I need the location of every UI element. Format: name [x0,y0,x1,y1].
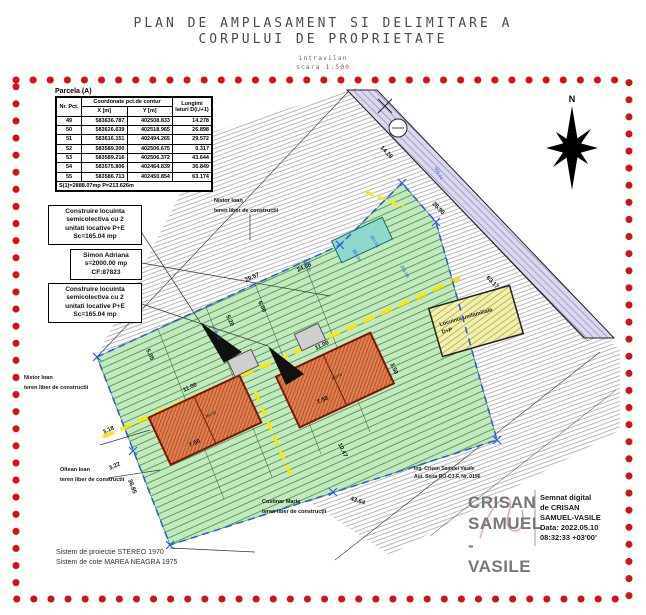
table-row: 53583589.216402506.37243.644 [56,153,212,162]
page-subtitle: intravilan scara 1:500 [0,54,646,72]
owner-label-nistor-top: Nistor Ioanteren liber de constructii [214,197,278,217]
page-title: PLAN DE AMPLASAMENT SI DELIMITARE A CORP… [0,16,646,49]
annotation-box-owner: Simon Adriana s=2000.00 mp CF:87823 [70,249,142,280]
table-row: 49583636.787402508.83314.278 [56,116,212,125]
plan-document: Locuinta unifamiliala D+P [0,0,646,615]
coords-table: Nr. Pct. Coordonate pct.de contur Lungim… [55,96,213,192]
projection-system-notes: Sistem de proiectie STEREO 1970 Sistem d… [56,548,177,568]
engineer-credentials: Ing. Crișan Samuel Vasile Aut. Seria RO-… [414,466,480,481]
svg-text:36.85: 36.85 [126,479,137,496]
annotation-box-construire-2: Construire locuinta semicolectiva cu 2 u… [48,283,142,323]
col-header-coords: Coordonate pct.de contur [82,97,173,107]
north-label: N [569,94,576,104]
coordinates-table-block: Parcela (A) Nr. Pct. Coordonate pct.de c… [55,88,213,192]
table-row: 55583586.713402450.85463.174 [56,172,212,181]
north-compass-icon: N [537,94,608,190]
col-header-length: Lungimi laturi D(i,i+1) [173,97,213,116]
table-row: 52583589.300402506.6750.317 [56,144,212,153]
col-header-y: Y [m] [127,107,173,116]
signature-details: Semnat digital de CRISAN SAMUEL-VASILE D… [540,493,630,542]
annotation-box-construire-1: Construire locuinta semicolectiva cu 2 u… [48,205,142,245]
table-footer-row: S(1)=2888.07mp P=213.626m [56,181,212,191]
table-row: 50583626.639402518.96526.898 [56,125,212,134]
owner-label-nistor-left: Nistor Ioanteren liber de constructii [24,374,88,394]
col-header-x: X [m] [82,107,128,116]
table-row: 51583616.151402494.26529.572 [56,135,212,144]
col-header-point: Nr. Pct. [56,97,82,116]
table-row: 54583575.806402464.83936.849 [56,163,212,172]
signature-name: CRISAN SAMUEL -VASILE [468,492,534,577]
table-caption: Parcela (A) [55,88,213,95]
owner-label-oltean: Oltean Ioanteren liber de constructii [60,466,124,486]
owner-label-costinar: Costinar Mariateren liber de construcții [262,498,326,518]
